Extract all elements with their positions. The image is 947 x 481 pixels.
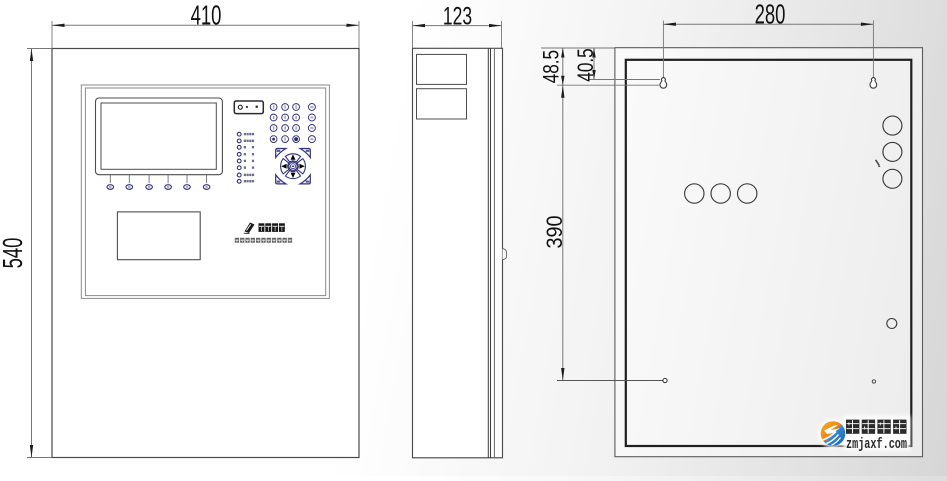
- svg-text:zmjaxf.com: zmjaxf.com: [846, 437, 907, 453]
- svg-text:540: 540: [0, 238, 29, 269]
- svg-text:390: 390: [543, 215, 567, 248]
- svg-text:410: 410: [191, 1, 222, 32]
- svg-text:48.5: 48.5: [540, 50, 565, 83]
- svg-text:40.5: 40.5: [574, 48, 599, 81]
- svg-text:123: 123: [443, 1, 472, 30]
- svg-text:280: 280: [755, 0, 786, 30]
